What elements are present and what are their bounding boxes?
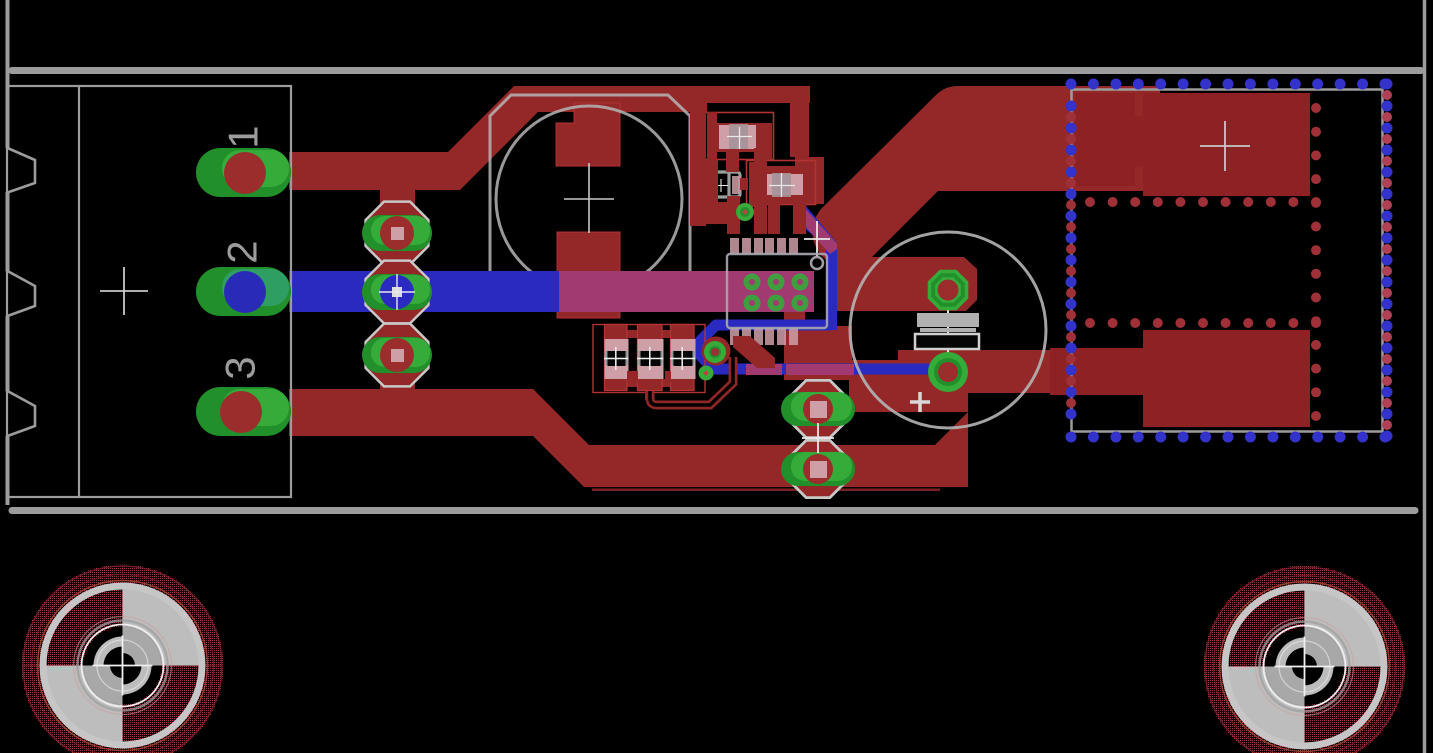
svg-text:3: 3 [217, 356, 264, 379]
svg-text:2: 2 [219, 240, 266, 263]
svg-text:1: 1 [220, 125, 267, 148]
